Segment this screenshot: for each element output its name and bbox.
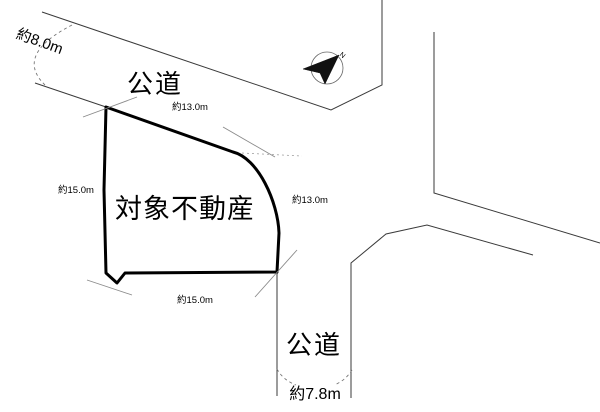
- north-compass: N: [303, 51, 346, 84]
- road-width-arc-bottom-right: [334, 370, 352, 385]
- site-plan-svg: N 公道 約8.0m 約13.0m 約13.0m 約15.0m 約15.0m 対…: [0, 0, 600, 412]
- dimension-label-west-edge: 約15.0m: [58, 184, 94, 196]
- corner-tick-southwest: [87, 280, 132, 295]
- site-plan: N 公道 約8.0m 約13.0m 約13.0m 約15.0m 約15.0m 対…: [0, 0, 600, 412]
- property-label: 対象不動産: [115, 194, 255, 224]
- road-width-label-top: 約8.0m: [14, 26, 65, 59]
- north-arrow-icon: [303, 55, 339, 84]
- road-width-arc-bottom-left: [277, 369, 296, 385]
- road-edge-bottom-right: [351, 225, 533, 398]
- road-edge-top-upper: [42, 0, 382, 110]
- road-edge-top-lower: [35, 83, 106, 107]
- north-label: N: [338, 51, 346, 60]
- road-edge-east-upper: [434, 32, 600, 243]
- road-width-label-bottom: 約7.8m: [289, 385, 341, 403]
- road-label-bottom: 公道: [286, 330, 342, 360]
- dimension-label-south-edge: 約15.0m: [177, 294, 213, 306]
- dimension-label-east-edge: 約13.0m: [292, 194, 328, 206]
- dimension-label-north-edge: 約13.0m: [172, 101, 208, 113]
- road-label-top: 公道: [127, 69, 183, 99]
